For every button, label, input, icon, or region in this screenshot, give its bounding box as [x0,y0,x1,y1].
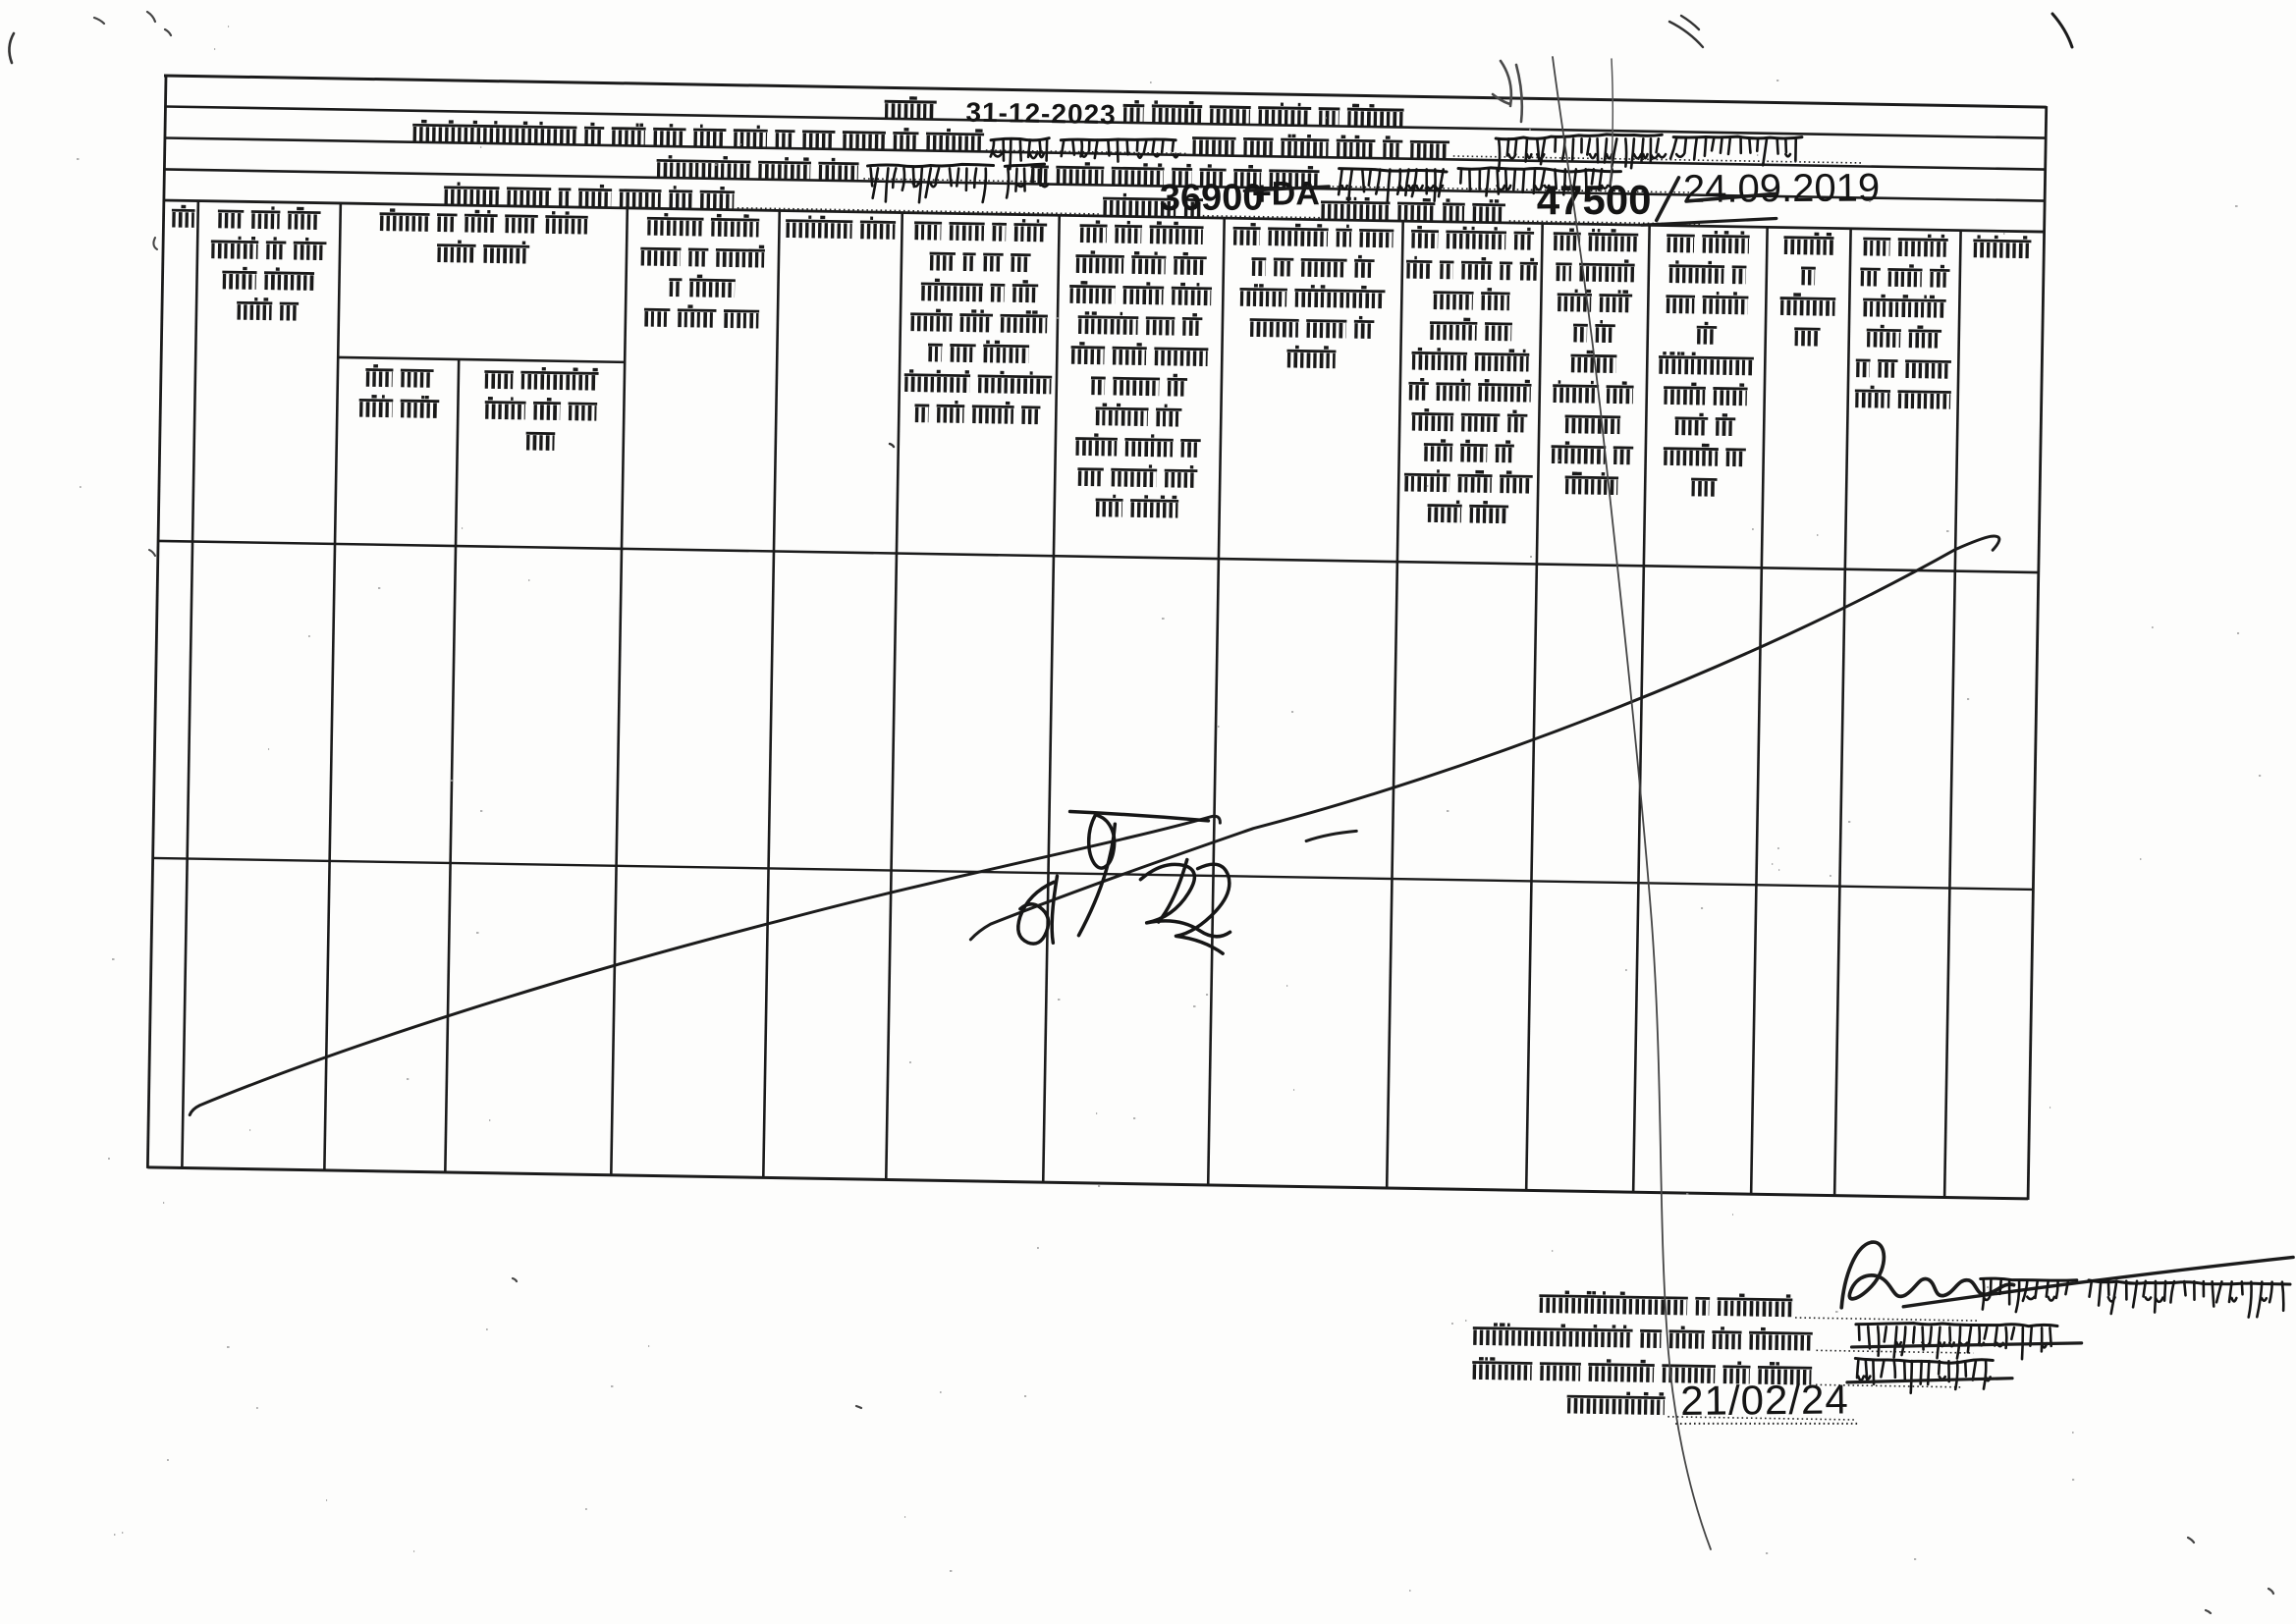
svg-text:31-12-2023: 31-12-2023 [965,97,1117,131]
svg-text:+DA: +DA [1252,175,1320,212]
svg-text:21/02/24: 21/02/24 [1680,1376,1849,1424]
svg-text:36900: 36900 [1160,178,1264,219]
svg-text:47500: 47500 [1537,177,1652,224]
svg-text:24.09.2019: 24.09.2019 [1683,166,1881,211]
